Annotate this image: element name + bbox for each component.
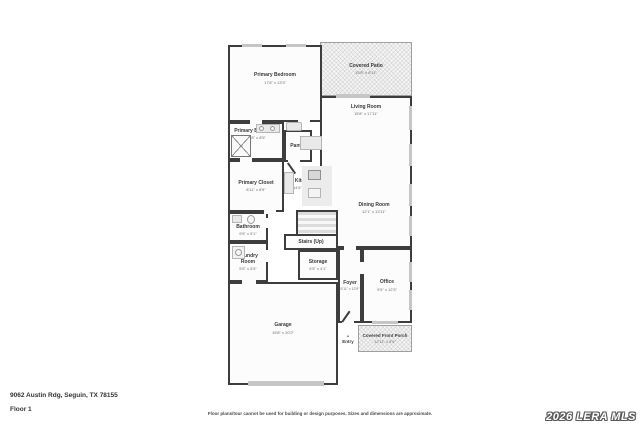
room-storage: Storage 5'5" x 4'1"	[298, 250, 338, 280]
room-primary-closet: Primary Closet 8'11" x 8'9"	[228, 160, 284, 212]
washer-drum-icon	[235, 249, 242, 256]
room-label: Living Room 15'8" x 17'11"	[351, 98, 381, 116]
room-primary-bedroom: Primary Bedroom 17'8" x 13'3"	[228, 45, 322, 122]
room-garage: Garage 19'8" x 20'2"	[228, 282, 338, 385]
window-marker	[409, 262, 412, 282]
room-stairs: Stairs (Up)	[284, 234, 338, 250]
door-opening	[265, 250, 270, 262]
stair-treads	[296, 210, 338, 236]
room-living-room: Living Room 15'8" x 17'11"	[320, 96, 412, 170]
room-office: Office 9'5" x 12'3"	[362, 248, 412, 323]
floor-plan-page: Covered Patio 15'8" x 8'11" Primary Bedr…	[0, 0, 640, 427]
room-label: Primary Bedroom 17'8" x 13'3"	[254, 72, 296, 84]
room-label: Office 9'5" x 12'3"	[377, 279, 397, 291]
refrigerator-icon	[284, 172, 294, 194]
window-marker	[409, 216, 412, 236]
window-marker	[242, 44, 262, 47]
sink-basin-icon	[259, 126, 264, 131]
room-label: Primary Closet 8'11" x 8'9"	[238, 180, 273, 192]
entry-direction-icon: ▲	[346, 334, 350, 338]
mls-watermark: 2026 LERA MLS	[546, 411, 636, 423]
room-covered-front-porch: Covered Front Porch 12'11" x 5'9"	[358, 325, 412, 352]
garage-door-marker	[248, 381, 324, 386]
room-covered-patio: Covered Patio 15'8" x 8'11"	[320, 42, 412, 96]
island-sink-icon	[308, 188, 321, 198]
room-label: Foyer 5'11" x 12'9"	[341, 280, 360, 292]
door-opening	[360, 262, 365, 274]
room-entry: ▲ Entry	[338, 325, 358, 352]
stove-icon	[308, 170, 321, 180]
sink-basin-icon	[270, 126, 275, 131]
room-label: Dining Room 12'1" x 13'11"	[358, 202, 389, 214]
window-marker	[409, 290, 412, 310]
kitchen-counter	[300, 136, 322, 150]
room-label: Bathroom 9'5" x 5'1"	[236, 224, 260, 236]
patio-sliding-door-marker	[336, 94, 370, 98]
room-label: Covered Patio 15'8" x 8'11"	[349, 63, 383, 75]
door-opening	[240, 157, 252, 162]
floor-label: Floor 1	[10, 406, 32, 413]
door-opening	[242, 279, 256, 285]
toilet-icon	[247, 215, 255, 224]
window-marker	[409, 106, 412, 130]
door-opening	[265, 218, 270, 228]
shower-icon	[231, 135, 251, 157]
room-label: Storage 5'5" x 4'1"	[309, 259, 328, 271]
door-opening	[344, 246, 356, 252]
address: 9062 Austin Rdg, Seguin, TX 78155	[10, 392, 118, 399]
door-opening	[264, 209, 276, 214]
window-marker	[286, 44, 306, 47]
room-label: Covered Front Porch 12'11" x 5'9"	[363, 333, 408, 345]
room-label: Entry	[342, 339, 354, 344]
bathtub-icon	[286, 122, 302, 131]
room-label: Stairs (Up)	[298, 239, 323, 245]
window-marker	[409, 144, 412, 166]
room-foyer: Foyer 5'11" x 12'9"	[338, 248, 362, 323]
bathroom-sink-icon	[232, 215, 242, 223]
disclaimer: Floor plans/tour cannot be used for buil…	[208, 411, 432, 416]
door-opening	[342, 320, 354, 326]
office-window-marker	[372, 321, 398, 324]
window-marker	[409, 184, 412, 206]
room-label: Garage 19'8" x 20'2"	[272, 322, 294, 334]
floor-plan: Covered Patio 15'8" x 8'11" Primary Bedr…	[0, 0, 640, 427]
